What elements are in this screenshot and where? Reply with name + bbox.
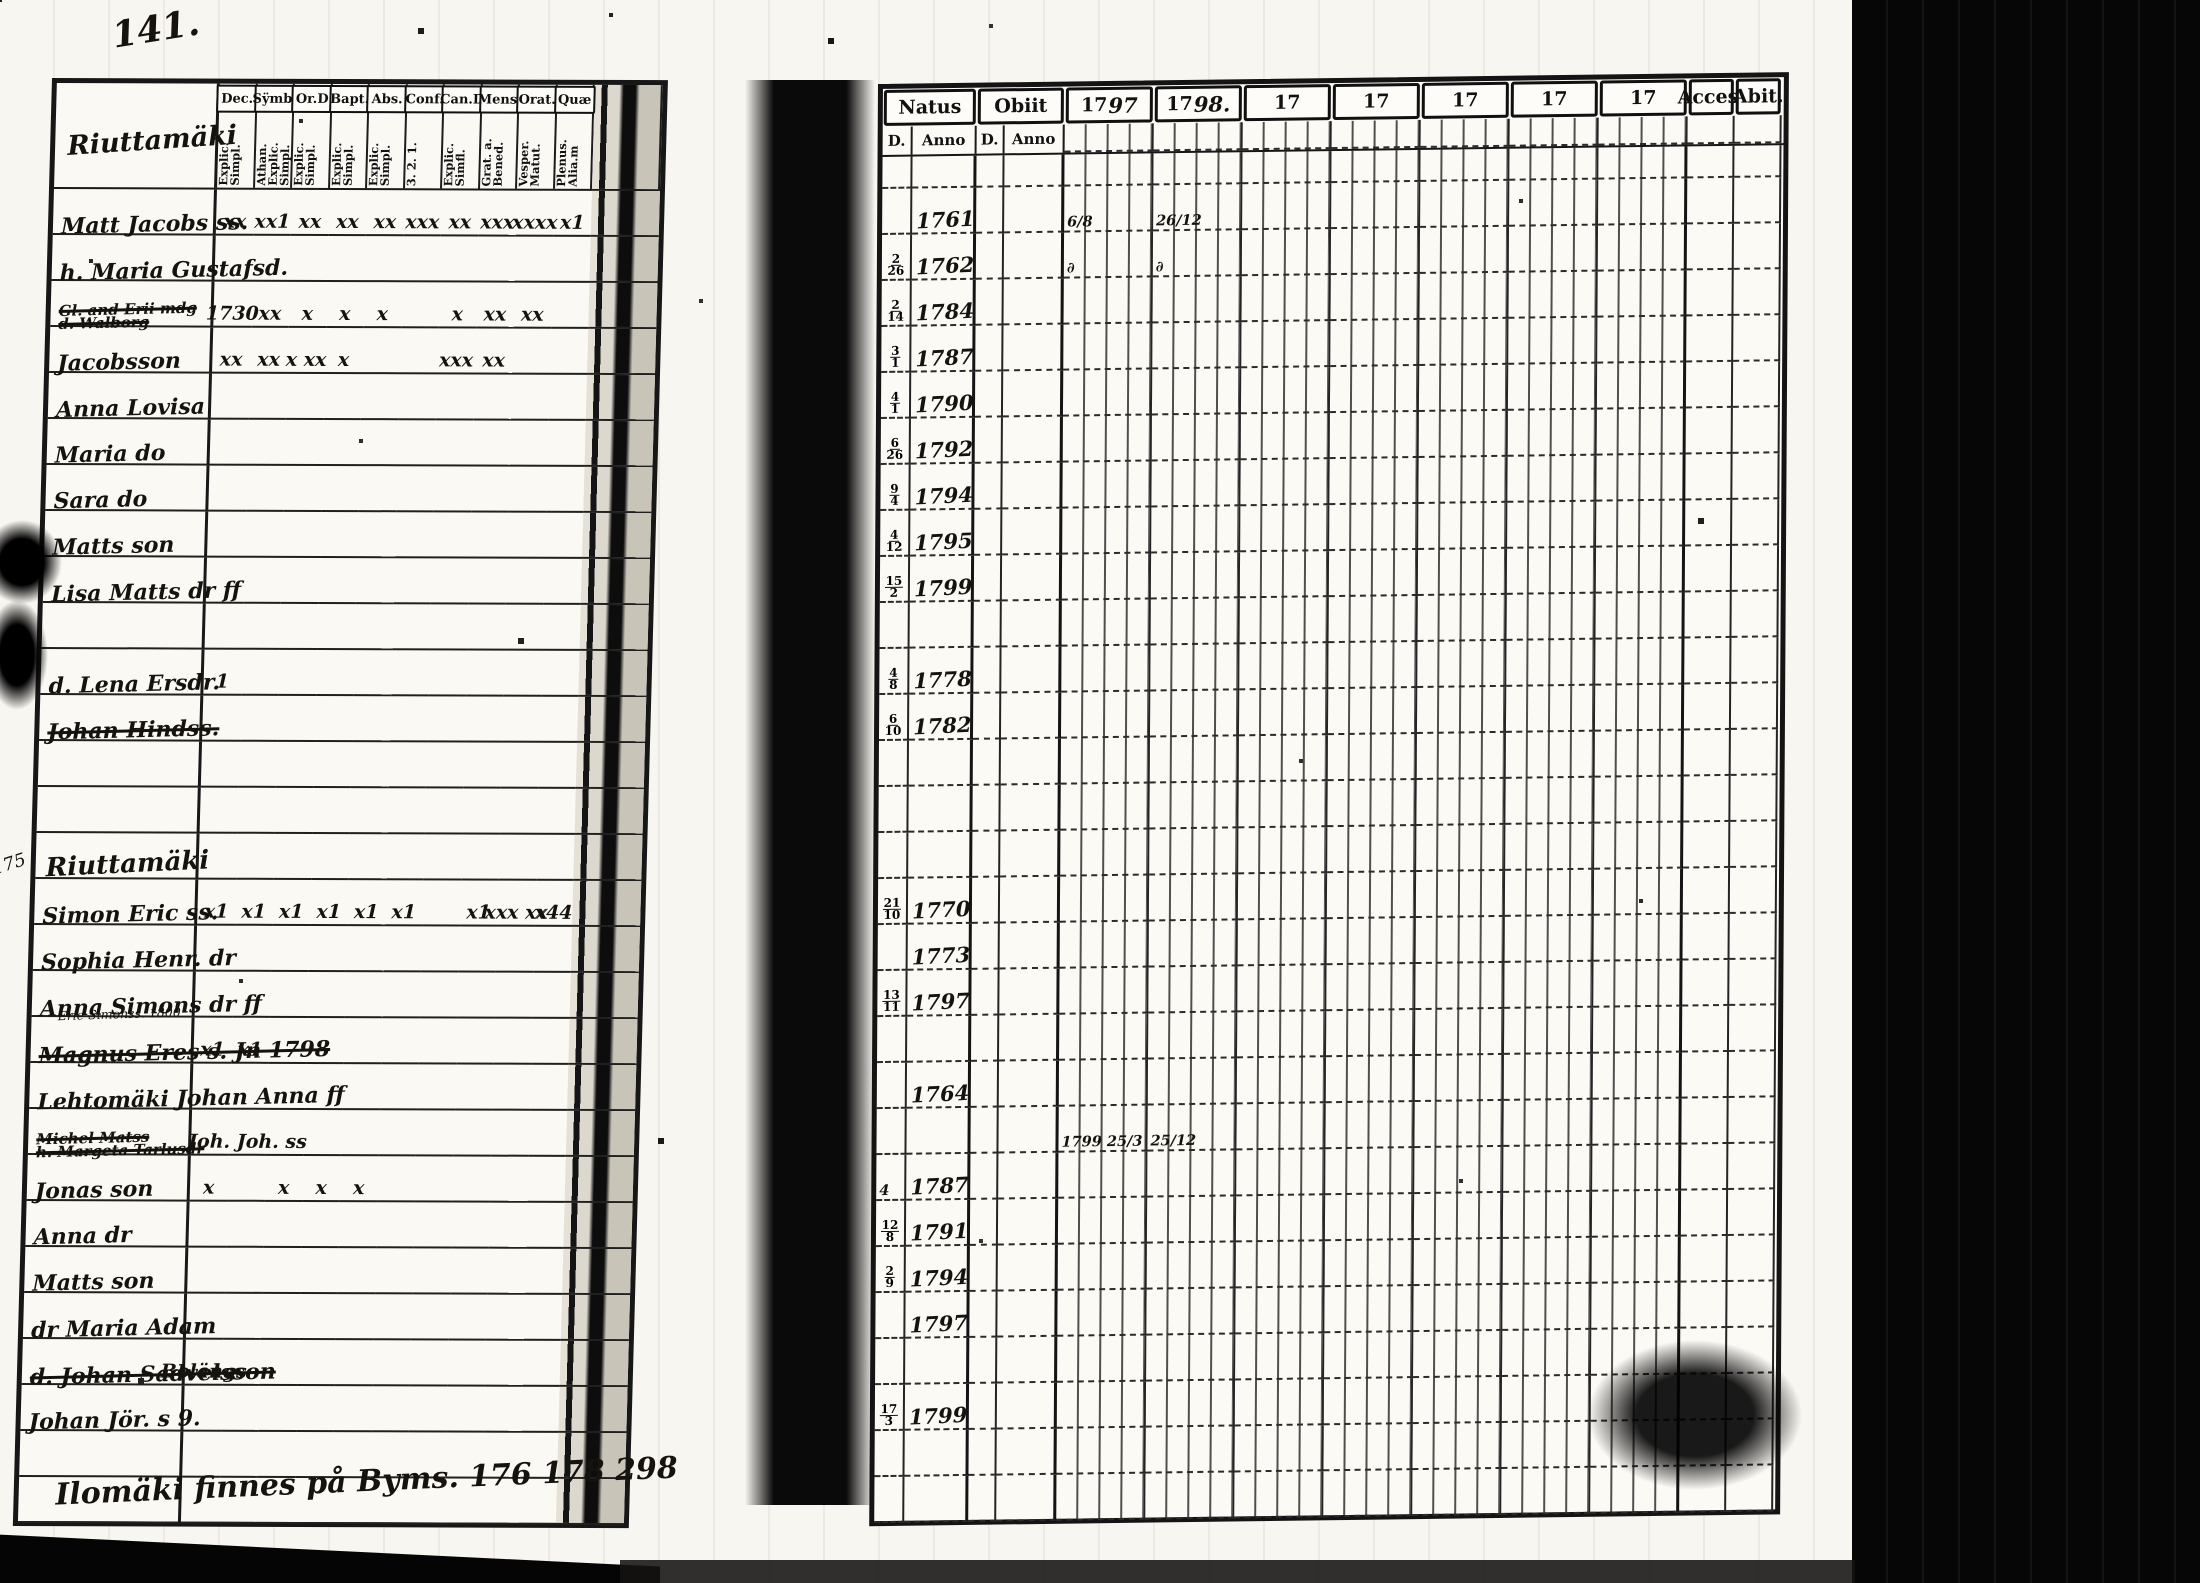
right-table-body: 17616/826/122261762∂∂2141784311787411790… — [874, 177, 1783, 1523]
natus-day-cell: 29 — [876, 1247, 906, 1293]
natus-year-cell: 1797 — [907, 970, 971, 1017]
examination-mark: xx — [220, 349, 243, 371]
year-mark-cell — [1235, 1379, 1324, 1426]
year-mark-cell — [1057, 1336, 1146, 1383]
year-printed-prefix: 17 — [1081, 94, 1108, 116]
row-name-cell: Riuttamäki175 — [35, 833, 199, 880]
obiit-year-cell — [1000, 923, 1060, 970]
year-mark-cell — [1150, 644, 1239, 691]
mark-cell: x — [288, 282, 327, 328]
year-mark-cell — [1506, 732, 1595, 779]
mark-cell — [465, 696, 504, 742]
column-subheader-label: Explic. Simpl. — [218, 114, 254, 186]
year-mark-cell — [1241, 275, 1330, 322]
mark-cell — [333, 1386, 372, 1432]
mark-cell — [498, 835, 537, 881]
examination-mark: x — [338, 349, 350, 371]
mark-cell — [307, 972, 346, 1018]
mark-cell: x1 — [385, 880, 424, 926]
table-row: h. Maria Gustafsd. — [52, 235, 659, 283]
year-mark-cell — [1328, 734, 1417, 781]
column-header-label: Orat. — [516, 86, 558, 114]
mark-cell — [276, 742, 315, 788]
natus-year-cell: 1778 — [909, 648, 973, 695]
spacer-cell — [912, 156, 976, 189]
mark-cell — [426, 742, 465, 788]
obiit-day-cell — [971, 1015, 999, 1061]
column-subheader-label: Plenus. Alia.m — [556, 115, 592, 187]
year-mark-cell — [1146, 1334, 1235, 1381]
year-mark-cell — [1242, 229, 1331, 276]
mark-cell — [321, 466, 360, 512]
year-mark-cell — [1507, 456, 1596, 503]
column-subheader-label: 3. 2. 1. — [406, 114, 442, 186]
spacer-cell — [1153, 152, 1242, 185]
year-mark-cell — [1324, 1378, 1413, 1425]
natus-day: 214 — [887, 300, 904, 323]
mark-cell — [208, 466, 247, 512]
table-row — [37, 787, 644, 835]
smudge-cell — [576, 743, 645, 789]
mark-cell — [355, 604, 394, 650]
natus-year-cell — [908, 786, 972, 833]
year-mark-cell — [1329, 596, 1418, 643]
name-column-header: Riuttamäki — [54, 83, 220, 188]
row-name-cell: dr Maria Adam — [23, 1293, 187, 1340]
scanner-black-margin — [1852, 0, 2200, 1583]
mark-cell — [225, 1248, 264, 1294]
natus-year: 1784 — [911, 298, 974, 326]
natus-year-cell — [907, 1016, 971, 1063]
mark-cell — [336, 1294, 375, 1340]
obiit-day-cell — [972, 831, 1000, 877]
natus-day-cell: 31 — [881, 327, 911, 373]
mark-cell — [512, 329, 551, 375]
spacer-cell — [1687, 146, 1734, 179]
mark-cell: x1 — [235, 880, 274, 926]
abit-cell — [1731, 729, 1778, 776]
natus-day-cell — [878, 925, 908, 971]
natus-year: 1764 — [906, 1080, 969, 1108]
obiit-year-cell — [996, 1475, 1056, 1522]
acces-cell — [1686, 362, 1733, 409]
mark-cell — [503, 651, 542, 697]
year-mark-cell — [1504, 1008, 1593, 1055]
mark-cell — [415, 1156, 454, 1202]
column-header-label: Quæ — [554, 86, 596, 114]
column-header-label: Or.D — [291, 85, 333, 113]
mark-cell — [335, 1340, 374, 1386]
year-mark-cell — [1238, 827, 1327, 874]
mark-cell — [286, 374, 325, 420]
mark-cell — [472, 421, 511, 467]
row-name-cell: Matts son — [44, 511, 208, 558]
mark-cell — [393, 558, 432, 604]
column-header: Or.DExplic. Simpl. — [292, 84, 332, 188]
year-mark-cell: ∂ — [1153, 230, 1242, 277]
mark-cell — [233, 926, 272, 972]
year-mark-cell — [1241, 321, 1330, 368]
year-mark-cell — [1417, 641, 1506, 688]
mark-cell — [487, 1249, 526, 1295]
mark-cell — [391, 650, 430, 696]
mark-cell — [543, 559, 582, 605]
examination-mark: x1 — [241, 901, 266, 923]
natus-year-cell — [906, 1108, 970, 1155]
mark-cell: x — [438, 282, 477, 328]
year-mark-cell — [1592, 1099, 1681, 1146]
year-mark-cell — [1058, 1198, 1147, 1245]
natus-year-cell — [908, 832, 972, 879]
mark-cell: x1 — [553, 191, 592, 237]
year-mark-cell — [1592, 1237, 1681, 1284]
mark-cell — [341, 1110, 380, 1156]
row-name: Jacobsson — [57, 349, 181, 375]
mark-cell — [477, 237, 516, 283]
obiit-year-cell — [998, 1199, 1058, 1246]
year-mark-cell — [1237, 965, 1326, 1012]
column-header: Dec.Explic. Simpl. — [217, 84, 257, 188]
year-mark-cell — [1595, 731, 1684, 778]
mark-cell — [322, 420, 361, 466]
row-name-cell: Matt Jacobs ss. — [53, 189, 217, 236]
fraction-bottom: 12 — [886, 542, 903, 553]
mark-cell — [205, 604, 244, 650]
year-mark-cell — [1323, 1424, 1412, 1471]
table-row: d. Lena Ersdr.1 — [40, 649, 647, 697]
examination-mark: xx — [298, 211, 321, 233]
natus-day: 610 — [885, 714, 902, 737]
natus-year-cell — [904, 1476, 968, 1523]
natus-year: 1795 — [910, 528, 973, 556]
natus-day-cell: 94 — [880, 465, 910, 511]
mark-cell — [262, 1248, 301, 1294]
year-mark-cell — [1330, 366, 1419, 413]
mark-cell: x1 — [272, 880, 311, 926]
natus-day-cell — [878, 787, 908, 833]
year-mark-cell — [1506, 594, 1595, 641]
natus-year-cell: 1787 — [911, 326, 975, 373]
mark-cell — [412, 1248, 451, 1294]
year-mark-cell — [1236, 1149, 1325, 1196]
year-mark-cell — [1149, 828, 1238, 875]
mark-cell — [462, 788, 501, 834]
year-mark-cell — [1507, 548, 1596, 595]
spacer-cell — [1064, 153, 1153, 186]
mark-cell — [427, 696, 466, 742]
year-mark-cell — [1236, 1195, 1325, 1242]
fraction-bottom: 8 — [886, 1232, 894, 1243]
fraction-bottom: 9 — [885, 1278, 893, 1289]
row-name-cell: Jonas son — [27, 1155, 191, 1202]
mark-cell — [338, 1202, 377, 1248]
row-name-cell: Johan Hindss. — [39, 695, 203, 742]
year-mark-cell — [1063, 323, 1152, 370]
examination-mark: x1 — [200, 1039, 225, 1061]
row-name-cell: Jacobsson — [49, 327, 213, 374]
mark-cell — [471, 467, 510, 513]
natus-day-cell: 226 — [882, 235, 912, 281]
mark-cell — [500, 789, 539, 835]
spacer-cell — [1734, 145, 1781, 178]
mark-cell: x — [340, 1156, 379, 1202]
mark-cell — [375, 1248, 414, 1294]
natus-year: 1799 — [905, 1402, 968, 1430]
natus-year: 1790 — [911, 390, 974, 418]
year-mark-cell — [1412, 1469, 1501, 1516]
column-header: Sÿmb.Athan. Explic. Simpl. — [255, 84, 295, 188]
page-number: 141. — [109, 1, 202, 56]
natus-year: 1770 — [908, 896, 971, 924]
year-mark-cell — [1152, 414, 1241, 461]
obiit-day-cell — [971, 969, 999, 1015]
natus-day: 226 — [887, 254, 904, 277]
mark-cell — [360, 420, 399, 466]
acces-cell — [1682, 1052, 1729, 1099]
obiit-year-cell — [1003, 371, 1063, 418]
abit-cell — [1734, 177, 1781, 224]
mark-cell: xxxx — [516, 191, 555, 237]
smudge-cell — [591, 191, 660, 237]
row-name: Anna Lovisa — [56, 395, 206, 422]
natus-year-cell: 1790 — [911, 372, 975, 419]
obiit-year-cell — [1004, 279, 1064, 326]
subheader-d: D. — [883, 127, 913, 155]
spacer-cell — [976, 155, 1004, 187]
year-mark-cell — [1593, 1007, 1682, 1054]
abit-cell — [1730, 821, 1777, 868]
acces-cell — [1682, 960, 1729, 1007]
year-mark-cell — [1063, 369, 1152, 416]
natus-day-cell — [875, 1293, 905, 1339]
row-name-cell: Lehtomäki Johan Anna ff — [29, 1063, 193, 1110]
natus-year-cell: 1799 — [905, 1384, 969, 1431]
natus-day-cell — [875, 1339, 905, 1385]
mark-cell — [236, 834, 275, 880]
smudge-cell — [566, 1111, 635, 1157]
year-mark-cell — [1504, 962, 1593, 1009]
mark-cell: x1 — [310, 880, 349, 926]
mark-cell: x xx — [287, 328, 326, 374]
mark-cell — [458, 926, 497, 972]
year-mark-cell — [1241, 367, 1330, 414]
year-subcolumns — [1421, 119, 1510, 148]
year-mark-cell — [1062, 553, 1151, 600]
year-mark-cell — [1240, 505, 1329, 552]
mark-cell — [402, 236, 441, 282]
year-mark-cell — [1146, 1380, 1235, 1427]
mark-cell — [277, 696, 316, 742]
obiit-day-cell — [974, 463, 1002, 509]
mark-cell — [537, 789, 576, 835]
mark-cell — [425, 788, 464, 834]
year-mark-cell — [1415, 1009, 1504, 1056]
mark-cell — [271, 926, 310, 972]
mark-cell — [485, 1341, 524, 1387]
end-column-header: Acces. — [1689, 79, 1734, 116]
mark-cell — [490, 1157, 529, 1203]
obiit-year-cell — [1000, 785, 1060, 832]
mark-cell — [530, 1065, 569, 1111]
mark-cell — [527, 1157, 566, 1203]
natus-year: 1792 — [910, 436, 973, 464]
table-row: Johan Jör. s 9. — [20, 1385, 627, 1433]
obiit-day-cell — [974, 601, 1002, 647]
year-mark-cell — [1414, 1239, 1503, 1286]
year-mark-cell — [1149, 782, 1238, 829]
natus-day-cell — [874, 1477, 904, 1523]
mark-cell — [223, 1294, 262, 1340]
year-mark-cell — [1241, 413, 1330, 460]
year-mark-cell — [1414, 1101, 1503, 1148]
examination-mark: xxx — [405, 211, 440, 233]
table-row — [38, 741, 645, 789]
row-name: Gl. and Erii mdgd. Walborg — [58, 303, 197, 329]
year-mark-cell — [1149, 920, 1238, 967]
year-mark-cell — [1149, 874, 1238, 921]
mark-cell — [364, 236, 403, 282]
fraction-bottom: 2 — [890, 588, 898, 599]
year-printed-prefix: 17 — [1274, 91, 1301, 113]
row-name: Anna dr — [33, 1223, 132, 1249]
mark-cell — [188, 1202, 227, 1248]
year-column-header: 17 — [1600, 79, 1687, 116]
year-mark-cell — [1327, 826, 1416, 873]
natus-year-cell: 1795 — [910, 510, 974, 557]
mark-cell — [501, 743, 540, 789]
obiit-day-cell — [974, 509, 1002, 555]
communion-date-mark: ∂ — [1153, 258, 1164, 275]
year-mark-cell — [1145, 1472, 1234, 1519]
table-row: d. Johan SadvelssonBolängs — [22, 1339, 629, 1387]
smudge-cell — [575, 789, 644, 835]
abit-cell — [1730, 775, 1777, 822]
year-mark-cell — [1327, 780, 1416, 827]
mark-cell — [343, 1018, 382, 1064]
year-mark-cell — [1502, 1284, 1591, 1331]
table-row: Gl. and Erii mdgd. Walborg1730xxxxxxxxxx — [50, 281, 657, 329]
mark-cell — [408, 1386, 447, 1432]
column-subheader-label: Explic. Simpl. — [331, 114, 367, 186]
natus-year-cell: 1762 — [912, 234, 976, 281]
natus-year-cell — [910, 602, 974, 649]
fraction-bottom: 11 — [883, 1002, 900, 1013]
year-subcolumns — [1599, 116, 1688, 145]
year-mark-cell — [1598, 224, 1687, 271]
obiit-day-cell — [969, 1292, 997, 1338]
examination-mark: x1 — [391, 901, 416, 923]
examination-mark: xxx — [439, 349, 474, 371]
year-mark-cell — [1148, 966, 1237, 1013]
year-mark-cell — [1145, 1426, 1234, 1473]
year-mark-cell — [1242, 183, 1331, 230]
row-name-cell: Sara do — [45, 465, 209, 512]
obiit-day-cell — [973, 647, 1001, 693]
natus-day-cell: 412 — [880, 511, 910, 557]
year-mark-cell — [1506, 686, 1595, 733]
year-mark-cell — [1060, 784, 1149, 831]
mark-cell — [241, 650, 280, 696]
mark-cell — [378, 1110, 417, 1156]
column-header-label: Bapt. — [329, 85, 371, 113]
smudge-cell — [587, 329, 656, 375]
year-mark-cell — [1507, 502, 1596, 549]
obiit-year-cell — [1000, 877, 1060, 924]
mark-cell — [483, 1387, 522, 1433]
natus-day-cell: 4 — [876, 1155, 906, 1201]
obiit-day-cell — [975, 325, 1003, 371]
year-mark-cell — [1063, 415, 1152, 462]
year-subcolumns — [1154, 122, 1243, 151]
mark-cell: xxx — [403, 190, 442, 236]
mark-cell — [528, 1111, 567, 1157]
year-mark-cell — [1414, 1147, 1503, 1194]
mark-cell — [283, 466, 322, 512]
year-mark-cell — [1151, 552, 1240, 599]
examination-mark: xx — [483, 304, 506, 326]
year-mark-cell — [1324, 1332, 1413, 1379]
examination-mark: xxx — [480, 212, 515, 234]
natus-day-cell — [877, 1017, 907, 1063]
mark-cell — [261, 1294, 300, 1340]
table-row: Matt Jacobs ss.xxxx1xxxxxxxxxxxxxxxxxxx1 — [53, 189, 660, 237]
natus-day: 626 — [886, 438, 903, 461]
row-name-cell: Lisa Matts dr ff — [43, 557, 207, 604]
year-column-header: 17 — [1244, 84, 1331, 121]
obiit-day-cell — [976, 279, 1004, 325]
natus-year: 1761 — [912, 206, 975, 234]
mark-cell — [187, 1248, 226, 1294]
year-mark-cell — [1412, 1423, 1501, 1470]
fraction-bottom: 26 — [886, 450, 903, 461]
year-mark-cell — [1061, 691, 1150, 738]
year-mark-cell — [1326, 1056, 1415, 1103]
row-name: Johan Hindss. — [47, 717, 220, 744]
column-header-label: Sÿmb. — [254, 85, 296, 113]
row-name-cell: Anna Lovisa — [48, 373, 212, 420]
abit-cell — [1731, 637, 1778, 684]
row-name-cell: Matts son — [24, 1247, 188, 1294]
acces-cell — [1683, 776, 1730, 823]
year-mark-cell — [1508, 272, 1597, 319]
mark-cell — [493, 1019, 532, 1065]
natus-year: 1797 — [907, 988, 970, 1016]
mark-cell — [383, 926, 422, 972]
mark-cell — [448, 1294, 487, 1340]
examination-mark: x — [339, 303, 351, 325]
natus-year-cell: 1761 — [912, 188, 976, 235]
row-name-cell: Magnus Eres s. Jn 1798Erie Simonss. 1800 — [30, 1017, 194, 1064]
mark-cell — [345, 972, 384, 1018]
mark-cell — [549, 329, 588, 375]
examination-mark: x1 — [279, 901, 304, 923]
mark-cell — [273, 834, 312, 880]
obiit-day-cell — [970, 1200, 998, 1246]
year-mark-cell — [1151, 460, 1240, 507]
obiit-day-cell — [972, 877, 1000, 923]
acces-cell — [1681, 1236, 1728, 1283]
examination-mark: xx — [223, 211, 246, 233]
year-mark-cell — [1236, 1241, 1325, 1288]
year-mark-cell — [1594, 869, 1683, 916]
year-mark-cell — [1330, 412, 1419, 459]
acces-cell — [1681, 1190, 1728, 1237]
mark-cell — [200, 788, 239, 834]
year-mark-cell — [1151, 506, 1240, 553]
mark-cell — [451, 1202, 490, 1248]
year-mark-cell — [1501, 1422, 1590, 1469]
mark-cell — [446, 1386, 485, 1432]
